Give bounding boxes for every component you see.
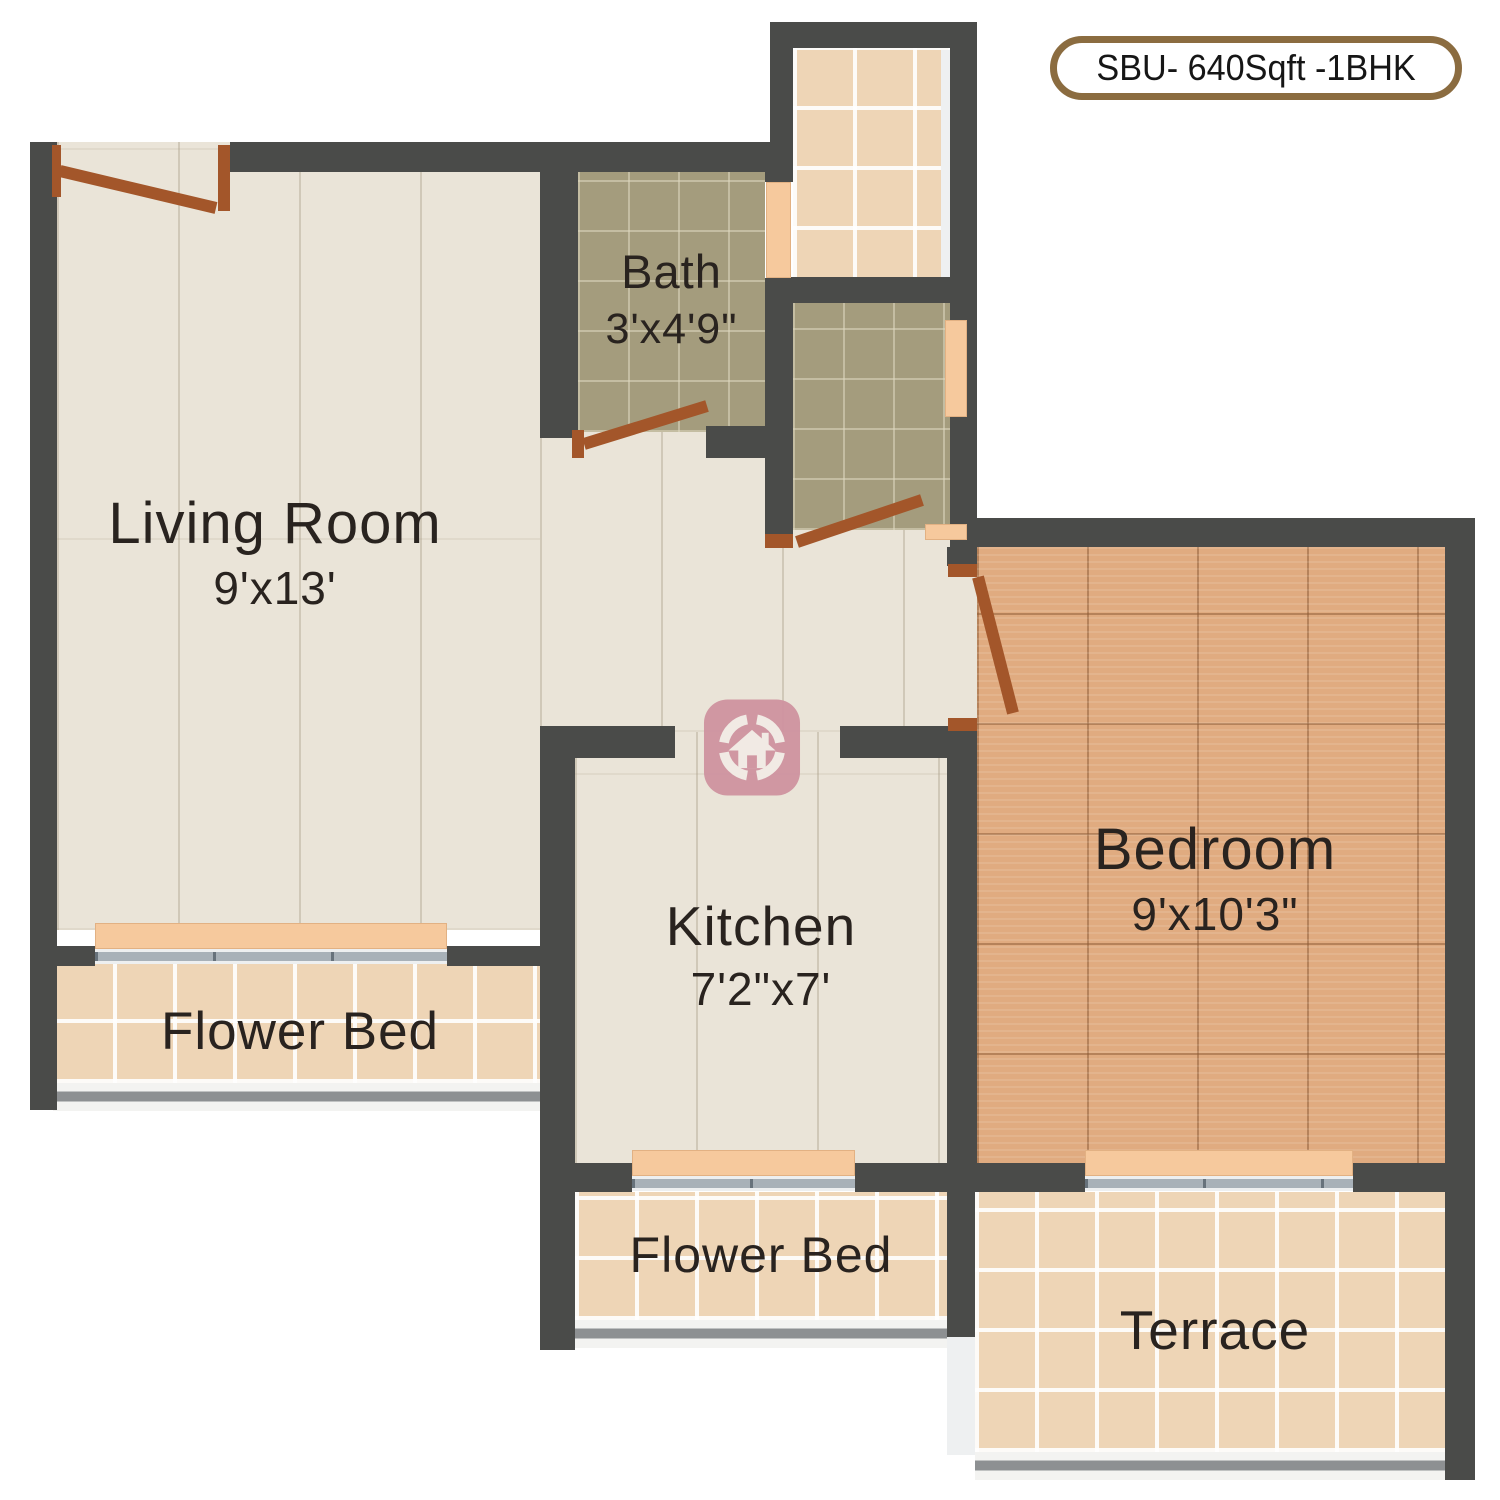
living-room-label: Living Room 9'x13' [70,492,480,614]
flower-bed-2-name: Flower Bed [578,1227,944,1283]
terrace-label: Terrace [985,1300,1445,1362]
bath-name: Bath [578,246,765,299]
flower-bed-1-name: Flower Bed [60,1002,540,1061]
bedroom-dims: 9'x10'3" [995,889,1435,941]
flower-bed-1-label: Flower Bed [60,1002,540,1061]
entry-door-leaf [60,171,216,208]
house-circle-watermark-icon [703,697,801,798]
bedroom-label: Bedroom 9'x10'3" [995,818,1435,940]
flower-bed-2-label: Flower Bed [578,1227,944,1283]
bath-dims: 3'x4'9" [578,305,765,353]
terrace-name: Terrace [985,1300,1445,1362]
floor-plan: Living Room 9'x13' Bath 3'x4'9" Kitchen … [0,0,1500,1500]
living-room-dims: 9'x13' [70,563,480,615]
kitchen-dims: 7'2"x7' [575,964,947,1016]
bath-label: Bath 3'x4'9" [578,246,765,353]
unit-info-badge: SBU- 640Sqft -1BHK [1050,36,1462,100]
living-room-name: Living Room [70,492,480,557]
kitchen-label: Kitchen 7'2"x7' [575,896,947,1015]
bedroom-name: Bedroom [995,818,1435,883]
bath-door-leaf [584,406,707,444]
wc-door-leaf [797,500,922,542]
unit-info-badge-label: SBU- 640Sqft -1BHK [1096,47,1415,89]
bedroom-door-leaf [978,577,1013,713]
kitchen-name: Kitchen [575,896,947,958]
